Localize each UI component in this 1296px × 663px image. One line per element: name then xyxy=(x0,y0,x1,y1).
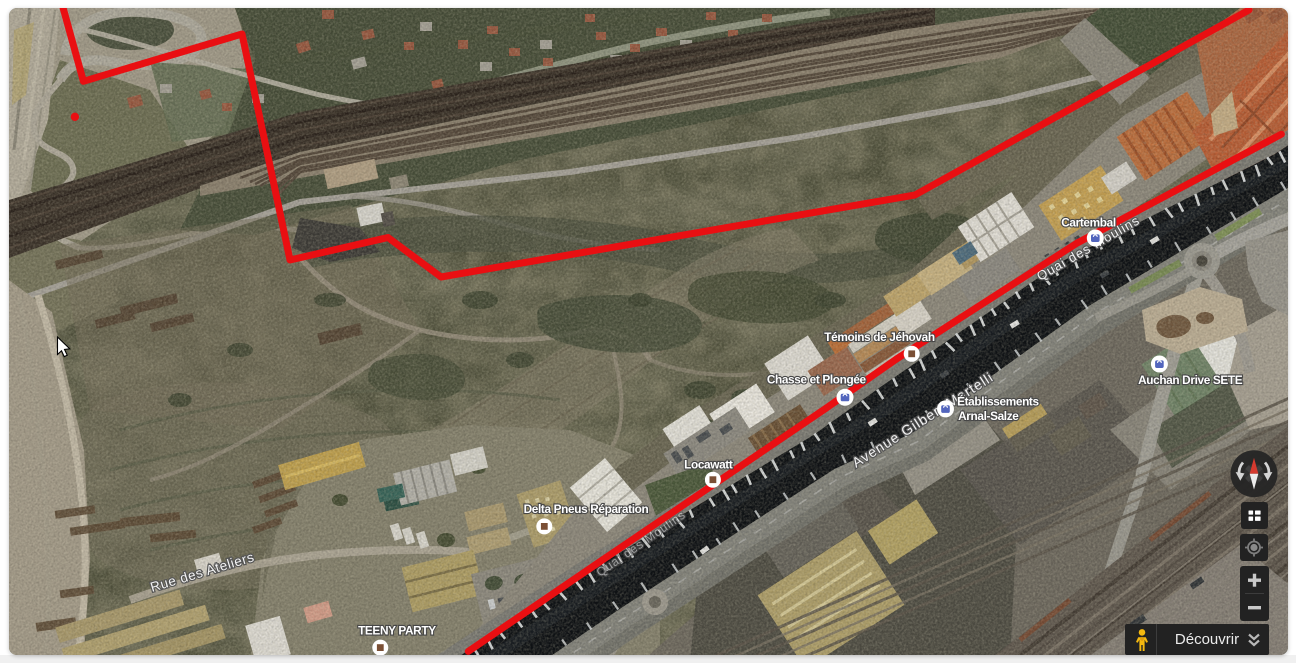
svg-text:Établissements: Établissements xyxy=(957,394,1039,408)
svg-text:Locawatt: Locawatt xyxy=(684,457,733,471)
svg-text:Auchan Drive SETE: Auchan Drive SETE xyxy=(1138,373,1243,387)
svg-text:Témoins de Jéhovah: Témoins de Jéhovah xyxy=(824,330,935,344)
svg-text:Chasse et Plongée: Chasse et Plongée xyxy=(767,373,867,387)
svg-text:Cartembal: Cartembal xyxy=(1061,216,1116,230)
svg-text:Arnal-Salze: Arnal-Salze xyxy=(958,409,1019,423)
svg-text:TEENY PARTY: TEENY PARTY xyxy=(358,623,436,637)
svg-text:Delta Pneus Réparation: Delta Pneus Réparation xyxy=(524,502,649,516)
